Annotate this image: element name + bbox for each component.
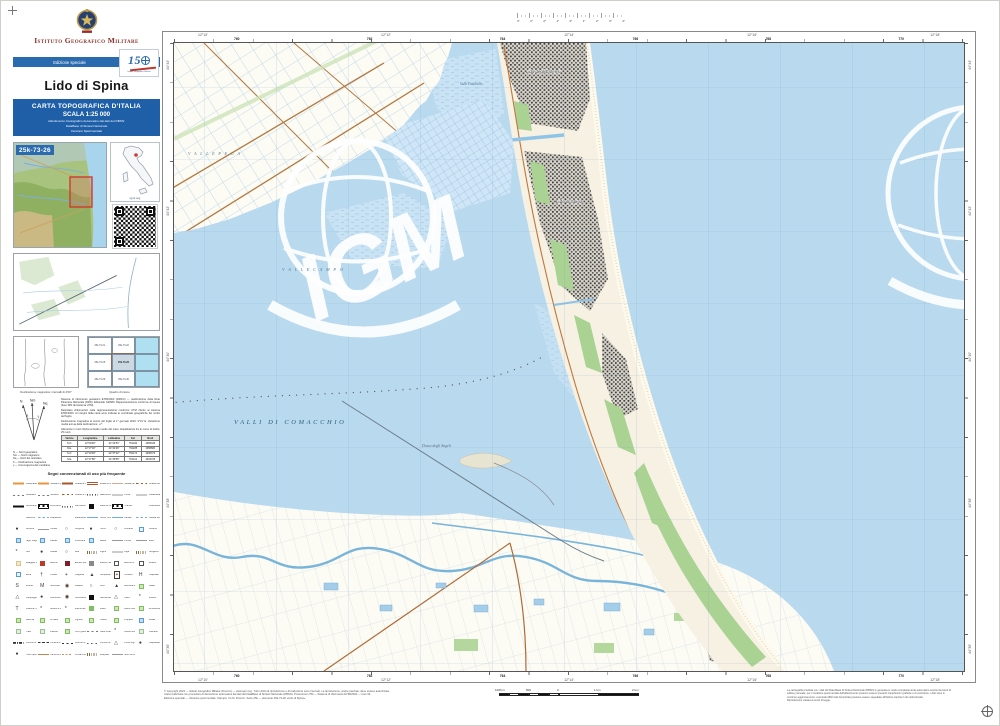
registration-mark-icon bbox=[982, 706, 993, 717]
legend-symbol-icon bbox=[38, 572, 49, 577]
map-frame: 12°10′12°12′12°14′12°16′12°18′ 760762764… bbox=[162, 31, 976, 683]
legend-symbol-icon bbox=[62, 652, 73, 657]
legend-title: Segni convenzionali di uso più frequente bbox=[13, 471, 160, 476]
anniversary-150-logo: 15 Istituto Geografico Militare bbox=[119, 49, 159, 77]
legend-item: Punto quotato bbox=[13, 649, 37, 660]
legend-item: Pontile bbox=[112, 535, 136, 546]
legend-item: Municipio bbox=[38, 581, 62, 592]
legend-item: Serra bbox=[13, 569, 37, 580]
legend-item: Strada di interesse locale bbox=[87, 478, 111, 489]
legend-item: Ospedale bbox=[136, 569, 160, 580]
legend-symbol-icon bbox=[112, 572, 123, 577]
legend-symbol-icon bbox=[13, 652, 24, 657]
legend-symbol-icon bbox=[38, 561, 49, 566]
legend-item: Punto trigonometrico bbox=[112, 637, 136, 648]
legend-symbol-icon bbox=[136, 629, 147, 634]
legend-symbol-icon bbox=[13, 606, 24, 611]
svg-text:γ: γ bbox=[38, 415, 40, 419]
legend-item: Palude bbox=[38, 535, 62, 546]
lagoon-label: Valle Fattibello bbox=[460, 82, 482, 86]
legend-symbol-icon bbox=[112, 584, 123, 589]
legend-item: Sorgente bbox=[62, 524, 86, 535]
legend-symbol-icon bbox=[87, 561, 98, 566]
legend-item: Scarpata bbox=[87, 649, 111, 660]
svg-text:Nq: Nq bbox=[43, 401, 47, 405]
legend-symbol-icon bbox=[136, 549, 147, 554]
legend-item: Bosco ceduo bbox=[112, 603, 136, 614]
area-preview-map bbox=[13, 253, 160, 331]
legend-item: Stadio bbox=[136, 581, 160, 592]
legend-item: Scogliera bbox=[136, 546, 160, 557]
legend-item: Edificio bbox=[38, 558, 62, 569]
copyright-text: © Copyright 2023 — Istituto Geografico M… bbox=[164, 690, 484, 700]
legend-item: Cava bbox=[112, 592, 136, 603]
quadro-cell bbox=[135, 371, 159, 388]
legend-item: Molo bbox=[136, 535, 160, 546]
declination-caption: Declinazione magnetica: intervalli di 2′… bbox=[13, 390, 79, 394]
legend-symbol-icon bbox=[87, 492, 98, 497]
legend-symbol-icon bbox=[112, 538, 123, 543]
legend-symbol-icon bbox=[62, 561, 73, 566]
magnetic-declination-map bbox=[13, 336, 79, 388]
legend-symbol-icon bbox=[136, 561, 147, 566]
town-label: Lido di Spina bbox=[556, 199, 583, 204]
quadro-cell bbox=[135, 354, 159, 371]
legend-item: Edificio pubblico bbox=[62, 558, 86, 569]
legend-item: Macchia bbox=[13, 615, 37, 626]
legend-item: Rudere bbox=[136, 558, 160, 569]
legend-item: Ferrovia in galleria bbox=[62, 501, 86, 512]
legend-item: Miniera bbox=[136, 592, 160, 603]
legend-symbol-icon bbox=[87, 504, 98, 509]
legend-symbol-icon bbox=[87, 629, 98, 634]
legend-symbol-icon bbox=[87, 584, 98, 589]
legend-item: Caposaldo di livellazione bbox=[136, 637, 160, 648]
quadro-cell: 25k-73-22 bbox=[112, 337, 136, 354]
legend-item: Bosco bbox=[87, 603, 111, 614]
legend-item: Scuola bbox=[13, 581, 37, 592]
legend-item: Antenna, ripetitore bbox=[13, 603, 37, 614]
legend-item: Prato bbox=[13, 626, 37, 637]
legend-symbol-icon bbox=[62, 504, 73, 509]
legend-item: Torre bbox=[87, 581, 111, 592]
geodetic-notes: Sistema di riferimento geodetico ETRF200… bbox=[61, 398, 160, 434]
legend-item: Tranvia bbox=[112, 501, 136, 512]
legend-symbol-icon bbox=[38, 538, 49, 543]
legend-symbol-icon bbox=[62, 595, 73, 600]
legend-item: Metanodotto bbox=[62, 512, 86, 523]
legend-symbol-icon bbox=[112, 641, 123, 646]
legend-symbol-icon bbox=[112, 629, 123, 634]
legend-symbol-icon bbox=[62, 618, 73, 623]
legend-symbol-icon bbox=[62, 527, 73, 532]
legend-item: Strada di grande comunicaz. bbox=[38, 478, 62, 489]
legend-symbol-icon bbox=[62, 492, 73, 497]
declination-ruler: 4°3°2°1°0°1°2°3°4° bbox=[517, 13, 625, 28]
legend-symbol-icon bbox=[87, 652, 98, 657]
legend-symbol-icon bbox=[13, 595, 24, 600]
legend-item: Canneto bbox=[136, 626, 160, 637]
legend-item: Monumento bbox=[112, 581, 136, 592]
legend-symbol-icon bbox=[38, 618, 49, 623]
graticule-band-top: 12°10′12°12′12°14′12°16′12°18′ 760762764… bbox=[174, 32, 964, 42]
legend-symbol-icon bbox=[136, 504, 147, 509]
graticule-band-right: 44°44′44°42′44°40′44°38′44°36′ bbox=[965, 43, 975, 671]
legend-symbol-icon bbox=[136, 595, 147, 600]
legend-symbol-icon bbox=[13, 492, 24, 497]
legend-symbol-icon bbox=[112, 527, 123, 532]
legend-symbol-icon bbox=[13, 515, 24, 520]
legend-item: Confine di Stato bbox=[13, 637, 37, 648]
legend-symbol-icon bbox=[13, 572, 24, 577]
legend-item: Curva di livello ordinaria bbox=[62, 649, 86, 660]
legend-symbol-icon bbox=[87, 538, 98, 543]
legend-symbol-icon bbox=[87, 527, 98, 532]
globe-icon bbox=[141, 56, 150, 65]
legend-symbol-icon bbox=[136, 618, 147, 623]
legend-symbol-icon bbox=[38, 492, 49, 497]
lagoon-label: V A L L E P E G A bbox=[188, 151, 241, 156]
legend-symbol-icon bbox=[13, 584, 24, 589]
legend-symbol-icon bbox=[87, 618, 98, 623]
legend-symbol-icon bbox=[62, 641, 73, 646]
legend-item: Muro di sostegno bbox=[112, 649, 136, 660]
legend-item: Salina bbox=[87, 535, 111, 546]
legend-item: Edificio in costruzione bbox=[112, 558, 136, 569]
edition-label: Edizione speciale bbox=[53, 60, 86, 65]
legend-symbol-icon bbox=[62, 584, 73, 589]
legend-item: Stazione ferroviaria bbox=[87, 501, 111, 512]
legend-item: Albero isolato bbox=[112, 626, 136, 637]
legend-item: Diga bbox=[112, 546, 136, 557]
legend-symbol-icon bbox=[87, 572, 98, 577]
legend-item: Mulattiera bbox=[13, 489, 37, 500]
legend-item: Canale sotterraneo bbox=[136, 512, 160, 523]
legend-item: Faro bbox=[13, 546, 37, 557]
legend-item: Cisterna bbox=[136, 524, 160, 535]
lagoon-label: V A L L E C A M P O bbox=[282, 267, 344, 272]
svg-text:δ: δ bbox=[27, 414, 29, 418]
legend-symbol-icon bbox=[62, 538, 73, 543]
legend-item: Cappella bbox=[62, 569, 86, 580]
legend-item: Fontana bbox=[112, 524, 136, 535]
quadro-cell: 25k-73-30 bbox=[112, 371, 136, 388]
legend-item: Filare di alberi bbox=[87, 626, 111, 637]
legend-symbol-icon bbox=[87, 549, 98, 554]
legend-symbol-icon bbox=[38, 549, 49, 554]
legend-symbol-icon bbox=[13, 641, 24, 646]
legend-item: Pioppeto bbox=[112, 615, 136, 626]
legend-grid: Autostrada Strada di grande comunicaz. S… bbox=[13, 478, 160, 660]
legend-item: Galleria stradale bbox=[87, 489, 111, 500]
legend-symbol-icon bbox=[112, 595, 123, 600]
legend-symbol-icon bbox=[112, 652, 123, 657]
legend-item: Centrale elettrica bbox=[62, 592, 86, 603]
edition-block: Edizione speciale 15 Istituto Geografico… bbox=[13, 49, 160, 75]
legend-item: Argine bbox=[87, 546, 111, 557]
legend-item: Chiusa bbox=[38, 524, 62, 535]
legend-item: Campanile bbox=[87, 569, 111, 580]
legend-symbol-icon bbox=[62, 549, 73, 554]
legend-item: Pascolo bbox=[38, 626, 62, 637]
legend-item: Fiume, torrente bbox=[87, 512, 111, 523]
legend-symbol-icon bbox=[136, 481, 147, 486]
quadro-cell bbox=[135, 337, 159, 354]
legend-item: Chiesa bbox=[38, 569, 62, 580]
legend-item: Peschiera bbox=[62, 535, 86, 546]
legend-item: Frutteto bbox=[38, 615, 62, 626]
legend-symbol-icon bbox=[62, 572, 73, 577]
series-box: CARTA TOPOGRAFICA D'ITALIA SCALA 1:25 00… bbox=[13, 99, 160, 136]
legend-symbol-icon bbox=[38, 595, 49, 600]
legend-symbol-icon bbox=[87, 641, 98, 646]
legend-symbol-icon bbox=[38, 641, 49, 646]
legend-item: Rimboschimento bbox=[136, 603, 160, 614]
legend-item: Vigneto bbox=[62, 615, 86, 626]
legend-symbol-icon bbox=[87, 515, 98, 520]
legend-item: Distributore carburanti bbox=[38, 592, 62, 603]
legend-item: Ferrovia a semplice binario bbox=[38, 501, 62, 512]
adjoining-sheets-diagram: 25k-73-21 25k-73-22 25k-73-25 25k-73-26 … bbox=[87, 336, 160, 388]
shoal-label: Dosso degli Angeli bbox=[421, 444, 451, 448]
legend-item: Cavalcavia bbox=[136, 489, 160, 500]
legend-symbol-icon bbox=[112, 481, 123, 486]
north-fan-diagram: N Nm Nq δ γ bbox=[13, 398, 55, 444]
igmi-url-caption: igmi.org bbox=[111, 196, 159, 200]
legend-symbol-icon bbox=[87, 606, 98, 611]
sheet-title: Lido di Spina bbox=[13, 78, 160, 93]
legend-symbol-icon bbox=[13, 538, 24, 543]
legend-symbol-icon bbox=[13, 527, 24, 532]
legend-symbol-icon bbox=[38, 504, 49, 509]
legend-symbol-icon bbox=[38, 481, 49, 486]
legend-item: Teleferica bbox=[13, 512, 37, 523]
quadro-cell: 25k-73-29 bbox=[88, 371, 112, 388]
legend-symbol-icon bbox=[112, 549, 123, 554]
legend-item: Spiaggia, dune bbox=[13, 558, 37, 569]
legend-item: Campeggio bbox=[13, 592, 37, 603]
legend-symbol-icon bbox=[136, 492, 147, 497]
legend-symbol-icon bbox=[112, 515, 123, 520]
legend-symbol-icon bbox=[136, 538, 147, 543]
legend-item: Strada in costruzione bbox=[62, 489, 86, 500]
legend-item: Autostrada bbox=[13, 478, 37, 489]
graticule-band-bottom: 760762764766768770 12°10′12°12′12°14′12°… bbox=[174, 672, 964, 682]
map-sheet: Istituto Geografico Militare Edizione sp… bbox=[0, 0, 1000, 726]
legend-symbol-icon bbox=[87, 481, 98, 486]
legend-item: Sentiero bbox=[38, 489, 62, 500]
legend-item: Mulino a vento bbox=[38, 603, 62, 614]
legend-symbol-icon bbox=[112, 504, 123, 509]
location-block: 25k-73-26 igmi.org bbox=[13, 142, 160, 248]
legend-symbol-icon bbox=[13, 561, 24, 566]
legend-symbol-icon bbox=[62, 606, 73, 611]
map-canvas: IGM VALLI DI COMACCHIO V A L L E C A M P… bbox=[173, 42, 965, 672]
anniversary-caption: Istituto Geografico Militare bbox=[127, 71, 150, 73]
quadro-cell: 25k-73-21 bbox=[88, 337, 112, 354]
legend-item: Edificio industriale bbox=[87, 558, 111, 569]
table-row: S.E. 12°17′58″ 44°36′55″ 762101 4944708 bbox=[62, 457, 160, 462]
svg-text:Nm: Nm bbox=[30, 398, 35, 402]
legend-symbol-icon bbox=[87, 595, 98, 600]
legend-symbol-icon bbox=[38, 652, 49, 657]
igm-emblem-icon bbox=[13, 7, 160, 35]
km-grid bbox=[174, 43, 964, 671]
graticule-band-left: 44°44′44°42′44°40′44°38′44°36′ bbox=[163, 43, 173, 671]
legend-item: Confine di Provincia bbox=[62, 637, 86, 648]
legend-symbol-icon bbox=[38, 629, 49, 634]
legend-item: Confine di Comune bbox=[87, 637, 111, 648]
legend-symbol-icon bbox=[38, 527, 49, 532]
legend-symbol-icon bbox=[112, 606, 123, 611]
legend-item: Pozzo bbox=[87, 524, 111, 535]
legend-symbol-icon bbox=[112, 561, 123, 566]
legend-item: Curva di livello direttrice bbox=[38, 649, 62, 660]
legend-symbol-icon bbox=[62, 515, 73, 520]
legend-item: Ferrovia a doppio binario bbox=[13, 501, 37, 512]
scale-bar: 1000 m 500 0 1 km 2 km bbox=[499, 688, 649, 700]
vertex-table: VerticeLongitudineLatitudineEstNord N.O.… bbox=[61, 435, 160, 462]
town-label: Lido degli Estensi bbox=[526, 69, 560, 74]
legend-symbol-icon bbox=[38, 515, 49, 520]
legend-symbol-icon bbox=[136, 572, 147, 577]
legend-symbol-icon bbox=[38, 584, 49, 589]
legend-symbol-icon bbox=[136, 641, 147, 646]
legend-item: Oliveto bbox=[87, 615, 111, 626]
legend-item: Orto, giardino bbox=[62, 626, 86, 637]
legend-item: Strada di interesse regionale bbox=[62, 478, 86, 489]
qr-code bbox=[113, 205, 157, 248]
legend-item: Fanale bbox=[38, 546, 62, 557]
institute-name: Istituto Geografico Militare bbox=[13, 36, 160, 45]
legend-symbol-icon bbox=[13, 481, 24, 486]
quadro-caption: Quadro d'unione bbox=[79, 390, 160, 394]
legend-item: Confine di Regione bbox=[38, 637, 62, 648]
legend-item: Strada carrozzabile bbox=[112, 478, 136, 489]
lagoon-label: VALLI DI COMACCHIO bbox=[234, 419, 346, 426]
quadro-cell: 25k-73-26 bbox=[112, 354, 136, 371]
legend-item: Linea elettrica bbox=[136, 501, 160, 512]
sidebar: Istituto Geografico Militare Edizione sp… bbox=[13, 7, 160, 660]
dbsn-note-text: La cartografia prodotta con i dati del D… bbox=[787, 689, 979, 702]
quadro-cell: 25k-73-25 bbox=[88, 354, 112, 371]
legend-item: Mulino ad acqua bbox=[62, 603, 86, 614]
legend-symbol-icon bbox=[38, 606, 49, 611]
legend-item: Idrovora bbox=[13, 524, 37, 535]
legend-item: Cabina elettrica bbox=[87, 592, 111, 603]
legend-symbol-icon bbox=[62, 481, 73, 486]
legend-symbol-icon bbox=[13, 549, 24, 554]
legend-symbol-icon bbox=[136, 584, 147, 589]
legend-item: Risaia bbox=[136, 615, 160, 626]
svg-text:N: N bbox=[20, 399, 23, 403]
legend-item: Acquedotto bbox=[38, 512, 62, 523]
quadro-grid: 25k-73-21 25k-73-22 25k-73-25 25k-73-26 … bbox=[88, 337, 159, 387]
regional-location-map: 25k-73-26 bbox=[13, 142, 107, 248]
legend-item: Lago, stagno bbox=[13, 535, 37, 546]
north-legend: N — Nord geograficoNm — Nord magneticoNq… bbox=[13, 451, 57, 467]
legend-symbol-icon bbox=[112, 492, 123, 497]
legend-symbol-icon bbox=[136, 515, 147, 520]
italy-overview-map: igmi.org bbox=[110, 142, 160, 202]
sheet-code-badge: 25k-73-26 bbox=[16, 145, 54, 155]
qr-finder-icon bbox=[115, 237, 124, 246]
legend-item: Boa bbox=[62, 546, 86, 557]
legend-symbol-icon bbox=[13, 504, 24, 509]
legend-item: Castello bbox=[62, 581, 86, 592]
qr-finder-icon bbox=[115, 207, 124, 216]
legend-symbol-icon bbox=[136, 606, 147, 611]
qr-finder-icon bbox=[146, 207, 155, 216]
legend-symbol-icon bbox=[112, 618, 123, 623]
legend-item: Ponte bbox=[112, 489, 136, 500]
legend-symbol-icon bbox=[13, 618, 24, 623]
legend-symbol-icon bbox=[13, 629, 24, 634]
legend-symbol-icon bbox=[136, 527, 147, 532]
legend-item: Canale bbox=[112, 512, 136, 523]
legend-item: Cimitero bbox=[112, 569, 136, 580]
legend-symbol-icon bbox=[62, 629, 73, 634]
legend-item: Strada campestre bbox=[136, 478, 160, 489]
